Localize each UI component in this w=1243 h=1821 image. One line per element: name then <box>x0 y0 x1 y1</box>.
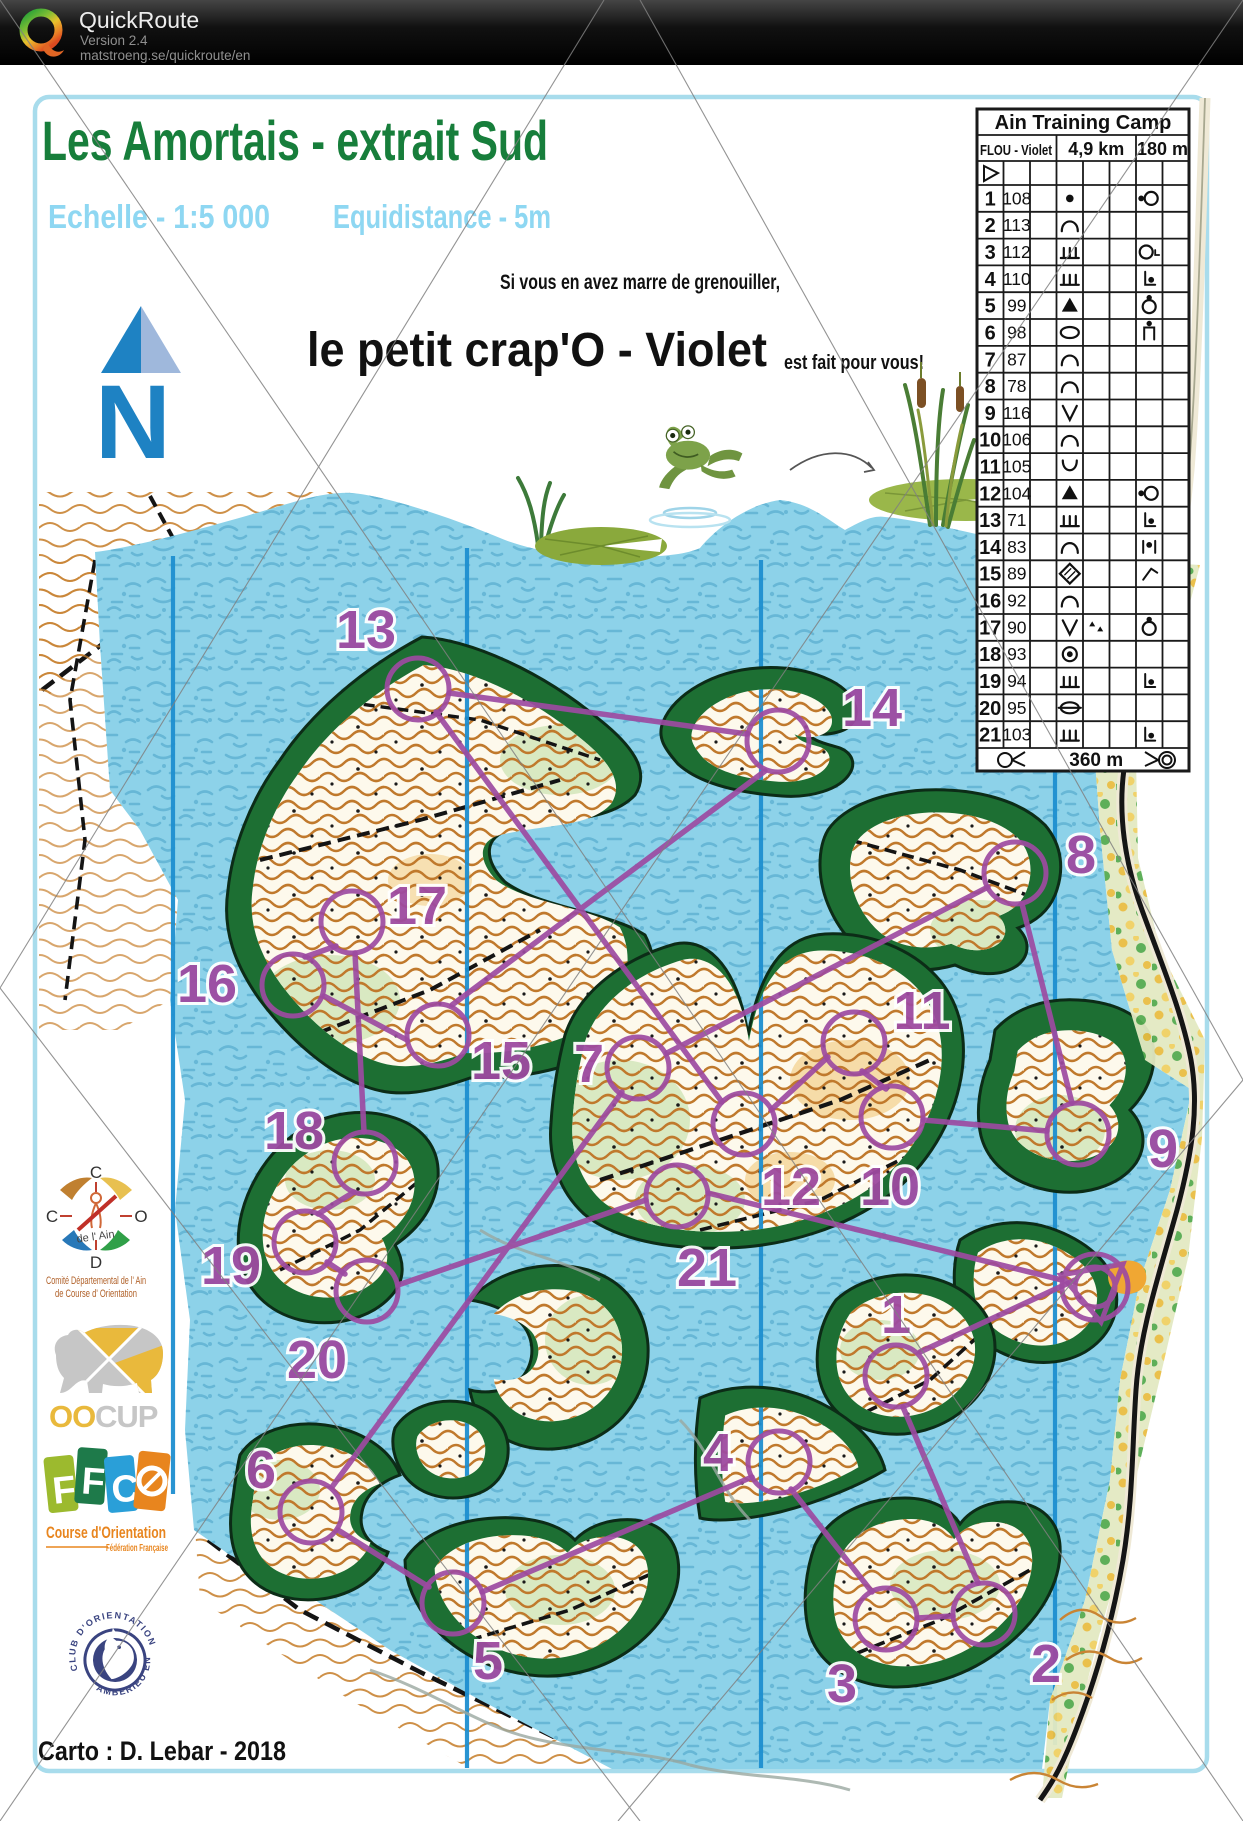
svg-text:Equidistance - 5m: Equidistance - 5m <box>333 198 551 235</box>
svg-text:O: O <box>134 1207 147 1226</box>
svg-text:105: 105 <box>1002 457 1031 477</box>
svg-text:180 m: 180 m <box>1137 139 1188 159</box>
svg-text:11: 11 <box>980 457 1001 479</box>
svg-text:Echelle - 1:5 000: Echelle - 1:5 000 <box>48 198 270 235</box>
svg-text:de Course d' Orientation: de Course d' Orientation <box>55 1288 137 1300</box>
svg-text:11: 11 <box>893 981 950 1041</box>
svg-text:Si vous en avez marre de greno: Si vous en avez marre de grenouiller, <box>500 271 780 294</box>
svg-text:14: 14 <box>979 537 1002 559</box>
svg-text:5: 5 <box>473 1631 503 1691</box>
svg-text:F: F <box>51 1469 78 1513</box>
svg-text:10: 10 <box>860 1157 920 1217</box>
svg-text:Course d'Orientation: Course d'Orientation <box>46 1524 166 1542</box>
svg-text:OO: OO <box>49 1399 95 1434</box>
svg-text:le petit crap'O - Violet: le petit crap'O - Violet <box>307 324 767 377</box>
svg-text:4,9 km: 4,9 km <box>1068 139 1124 159</box>
svg-text:1: 1 <box>985 188 996 210</box>
svg-text:FLOU - Violet: FLOU - Violet <box>980 142 1052 159</box>
svg-text:16: 16 <box>979 591 1001 613</box>
svg-text:N: N <box>95 364 171 481</box>
svg-text:19: 19 <box>979 671 1001 693</box>
svg-text:17: 17 <box>387 876 447 936</box>
svg-text:113: 113 <box>1003 215 1031 235</box>
svg-text:16: 16 <box>177 954 237 1014</box>
svg-text:15: 15 <box>979 564 1001 586</box>
svg-text:9: 9 <box>985 403 996 425</box>
svg-text:C: C <box>90 1163 102 1182</box>
svg-text:71: 71 <box>1007 510 1026 530</box>
svg-text:6: 6 <box>246 1440 276 1500</box>
svg-text:5: 5 <box>985 296 996 318</box>
svg-text:95: 95 <box>1007 698 1026 718</box>
svg-text:19: 19 <box>201 1236 261 1296</box>
svg-text:est fait pour vous!: est fait pour vous! <box>784 352 924 374</box>
svg-text:99: 99 <box>1007 296 1026 316</box>
svg-text:4: 4 <box>703 1423 733 1483</box>
svg-text:Ain Training Camp: Ain Training Camp <box>995 112 1172 134</box>
svg-text:12: 12 <box>761 1157 821 1217</box>
svg-text:2: 2 <box>985 215 996 237</box>
svg-text:78: 78 <box>1007 376 1026 396</box>
svg-text:92: 92 <box>1007 591 1026 611</box>
svg-text:Version 2.4: Version 2.4 <box>80 33 148 48</box>
svg-text:14: 14 <box>842 678 902 738</box>
svg-text:20: 20 <box>287 1330 347 1390</box>
svg-text:8: 8 <box>1066 825 1096 885</box>
svg-text:7: 7 <box>985 349 996 371</box>
svg-text:12: 12 <box>979 483 1001 505</box>
svg-text:8: 8 <box>985 376 996 398</box>
svg-text:C: C <box>46 1207 58 1226</box>
svg-text:15: 15 <box>471 1031 531 1091</box>
svg-text:104: 104 <box>1002 483 1031 503</box>
svg-text:112: 112 <box>1003 242 1031 262</box>
svg-text:3: 3 <box>827 1654 857 1714</box>
svg-text:17: 17 <box>979 617 1001 639</box>
svg-text:1: 1 <box>881 1285 911 1345</box>
svg-text:108: 108 <box>1002 188 1031 208</box>
svg-text:21: 21 <box>979 725 1001 747</box>
svg-text:9: 9 <box>1148 1119 1178 1179</box>
svg-text:4: 4 <box>985 269 997 291</box>
svg-text:Carto : D. Lebar - 2018: Carto : D. Lebar - 2018 <box>38 1736 286 1766</box>
svg-text:18: 18 <box>264 1101 324 1161</box>
svg-text:F: F <box>80 1460 106 1504</box>
svg-text:89: 89 <box>1007 564 1026 584</box>
svg-text:13: 13 <box>336 600 396 660</box>
svg-text:2: 2 <box>1031 1634 1061 1694</box>
svg-text:Les Amortais - extrait Sud: Les Amortais - extrait Sud <box>42 109 548 172</box>
svg-text:QuickRoute: QuickRoute <box>79 7 199 33</box>
svg-text:6: 6 <box>985 323 996 345</box>
svg-text:87: 87 <box>1007 349 1026 369</box>
svg-text:18: 18 <box>979 644 1001 666</box>
svg-text:83: 83 <box>1007 537 1026 557</box>
svg-text:98: 98 <box>1007 323 1026 343</box>
svg-text:matstroeng.se/quickroute/en: matstroeng.se/quickroute/en <box>80 48 250 63</box>
svg-text:D: D <box>90 1253 102 1272</box>
svg-text:110: 110 <box>1003 269 1031 289</box>
svg-text:Comité Départemental de l' Ain: Comité Départemental de l' Ain <box>46 1275 146 1287</box>
svg-text:7: 7 <box>574 1034 604 1094</box>
svg-text:Fédération Française: Fédération Française <box>106 1542 168 1554</box>
svg-text:116: 116 <box>1003 403 1031 423</box>
svg-text:360 m: 360 m <box>1069 750 1123 771</box>
svg-text:90: 90 <box>1007 617 1027 637</box>
svg-text:20: 20 <box>979 698 1001 720</box>
svg-text:3: 3 <box>985 242 996 264</box>
svg-text:103: 103 <box>1002 725 1031 745</box>
svg-text:10: 10 <box>979 430 1001 452</box>
svg-text:21: 21 <box>677 1238 737 1298</box>
svg-text:106: 106 <box>1002 430 1031 450</box>
svg-text:13: 13 <box>979 510 1001 532</box>
svg-text:93: 93 <box>1007 644 1026 664</box>
svg-text:CUP: CUP <box>95 1399 158 1434</box>
